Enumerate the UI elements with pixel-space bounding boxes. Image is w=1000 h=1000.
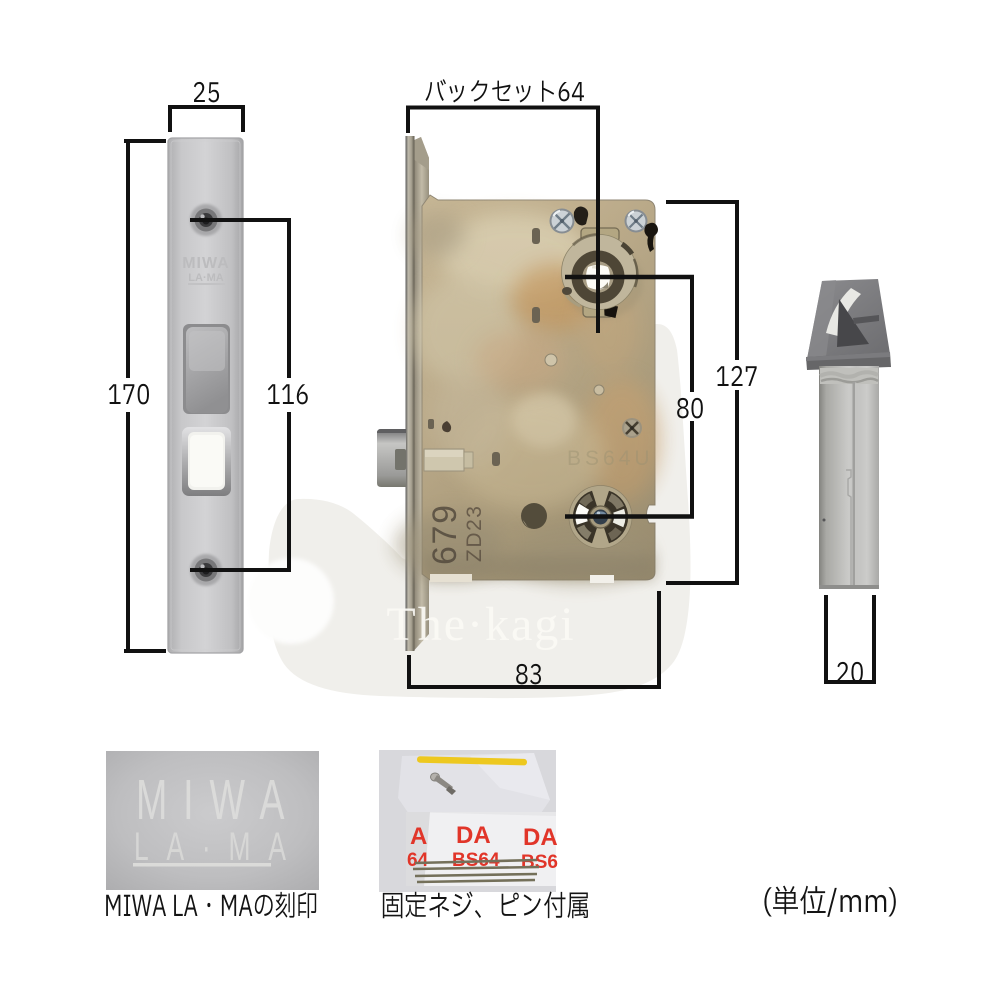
svg-text:BS6: BS6 <box>521 852 558 873</box>
svg-text:DA: DA <box>456 822 491 849</box>
svg-text:LA·MA: LA·MA <box>188 272 223 284</box>
svg-text:A: A <box>410 823 427 850</box>
svg-text:ZD23: ZD23 <box>463 506 486 562</box>
svg-text:BS64U: BS64U <box>567 447 654 470</box>
svg-text:MIWA: MIWA <box>182 255 230 272</box>
svg-text:The·kagi: The·kagi <box>386 598 575 651</box>
svg-text:LA·MA: LA·MA <box>134 825 304 870</box>
svg-text:MIWA: MIWA <box>136 768 300 832</box>
svg-text:679: 679 <box>426 505 464 565</box>
svg-text:DA: DA <box>523 824 558 851</box>
